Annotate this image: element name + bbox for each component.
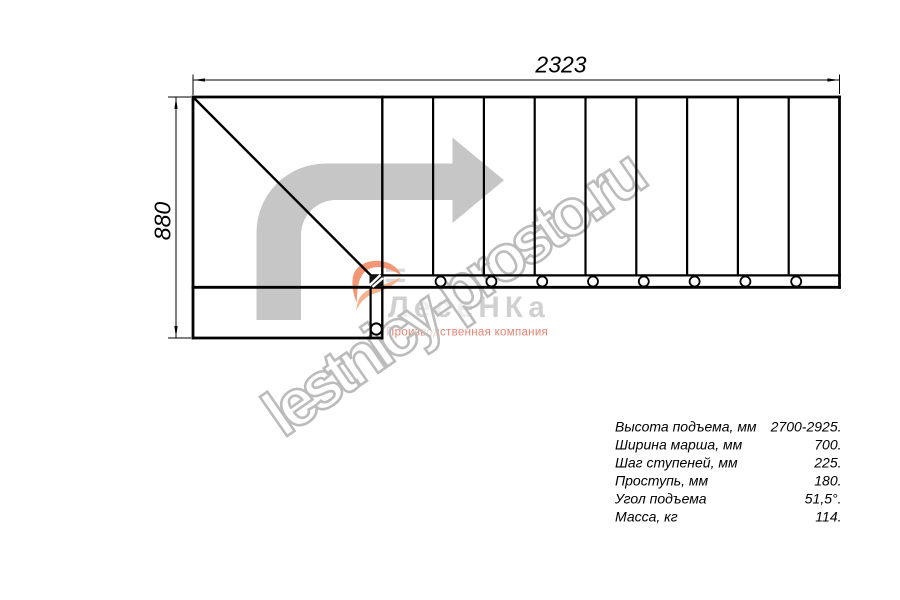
svg-text:Масса, кг: Масса, кг: [615, 509, 678, 525]
svg-text:114.: 114.: [815, 509, 841, 525]
svg-text:Проступь, мм: Проступь, мм: [615, 473, 709, 489]
svg-text:2323: 2323: [534, 52, 586, 78]
svg-text:880: 880: [150, 202, 176, 241]
svg-text:225.: 225.: [813, 455, 841, 471]
svg-text:Угол подъема: Угол подъема: [614, 491, 707, 507]
svg-text:180.: 180.: [814, 473, 841, 489]
svg-text:2700-2925.: 2700-2925.: [770, 419, 842, 435]
svg-text:Шаг ступеней, мм: Шаг ступеней, мм: [615, 455, 738, 471]
svg-text:700.: 700.: [814, 437, 841, 453]
svg-text:Высота подъема, мм: Высота подъема, мм: [615, 419, 757, 435]
svg-text:Ширина марша, мм: Ширина марша, мм: [615, 437, 743, 453]
svg-text:51,5°.: 51,5°.: [805, 491, 842, 507]
